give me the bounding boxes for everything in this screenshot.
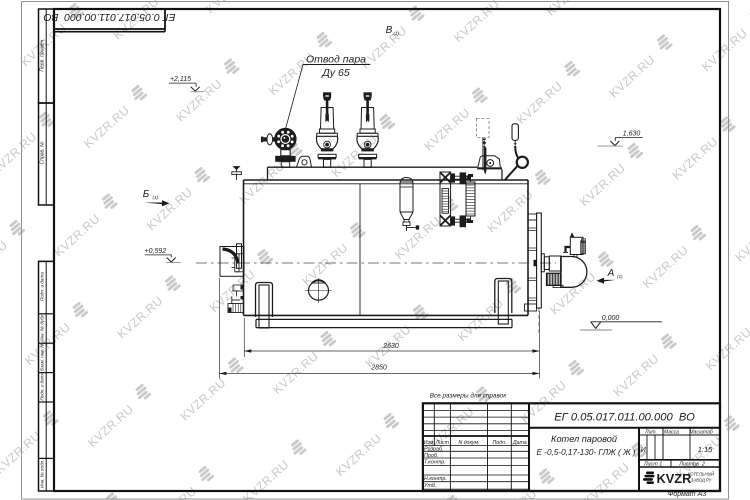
svg-text:Инв. № подл.: Инв. № подл.	[39, 459, 44, 488]
svg-text:Формат А3: Формат А3	[668, 491, 706, 498]
svg-text:Котел паровой: Котел паровой	[551, 434, 617, 444]
svg-text:Лист: Лист	[435, 440, 450, 446]
svg-text:(1): (1)	[394, 31, 400, 36]
svg-text:Листов 2: Листов 2	[678, 462, 705, 468]
svg-text:ЕГ 0.05.017.011.00.000 ВО: ЕГ 0.05.017.011.00.000 ВО	[554, 412, 695, 424]
svg-text:1,630: 1,630	[623, 130, 641, 137]
svg-text:Проб.: Проб.	[424, 453, 438, 459]
svg-text:Все размеры для справок: Все размеры для справок	[430, 391, 508, 399]
svg-text:2850: 2850	[370, 365, 387, 372]
svg-text:Масса: Масса	[664, 429, 679, 435]
svg-text:А: А	[607, 268, 615, 279]
svg-text:Подп.: Подп.	[492, 440, 506, 446]
svg-text:Дата: Дата	[512, 440, 527, 446]
svg-text:+2,115: +2,115	[170, 76, 191, 83]
svg-text:Инв. № дубл.: Инв. № дубл.	[39, 313, 44, 341]
svg-text:Справ. №: Справ. №	[39, 141, 45, 164]
svg-text:Лит.: Лит.	[644, 429, 657, 435]
svg-text:Ду 65: Ду 65	[321, 67, 350, 79]
svg-text:0,000: 0,000	[602, 315, 620, 322]
svg-text:Взам. инв. №: Взам. инв. №	[39, 343, 44, 371]
svg-text:Подп. и дата: Подп. и дата	[39, 272, 44, 301]
svg-text:1:15: 1:15	[698, 445, 713, 454]
svg-text:Отвод пара: Отвод пара	[306, 54, 366, 66]
svg-text:(1): (1)	[617, 274, 623, 279]
svg-text:N докум.: N докум.	[459, 440, 480, 446]
svg-text:Лист 1: Лист 1	[643, 462, 662, 468]
svg-text:Изм: Изм	[424, 440, 434, 446]
svg-text:Разраб.: Разраб.	[424, 447, 444, 453]
svg-text:Б: Б	[143, 189, 150, 200]
svg-text:ЗАВОД.РУ: ЗАВОД.РУ	[691, 478, 713, 483]
svg-text:Подп. и дата: Подп. и дата	[39, 371, 44, 400]
svg-text:2630: 2630	[382, 343, 399, 350]
svg-text:В: В	[386, 25, 393, 36]
svg-text:КОТЕЛЬНЫЙ: КОТЕЛЬНЫЙ	[688, 472, 714, 477]
svg-text:Утб.: Утб.	[423, 483, 436, 489]
svg-text:KVZR: KVZR	[657, 471, 692, 486]
svg-text:Т.контр.: Т.контр.	[424, 460, 446, 466]
svg-text:+0,592: +0,592	[145, 248, 167, 255]
svg-text:Масштаб: Масштаб	[689, 429, 713, 435]
svg-text:ЕГ 0.05.017.011.00.000 ВО: ЕГ 0.05.017.011.00.000 ВО	[44, 11, 176, 23]
svg-text:(1): (1)	[153, 195, 159, 200]
svg-text:Н.контр.: Н.контр.	[424, 476, 447, 482]
svg-text:Перв. примен.: Перв. примен.	[39, 38, 45, 71]
svg-text:Е -0,5-0,17-130- ГЛЖ ( Ж ): Е -0,5-0,17-130- ГЛЖ ( Ж )	[537, 448, 636, 457]
